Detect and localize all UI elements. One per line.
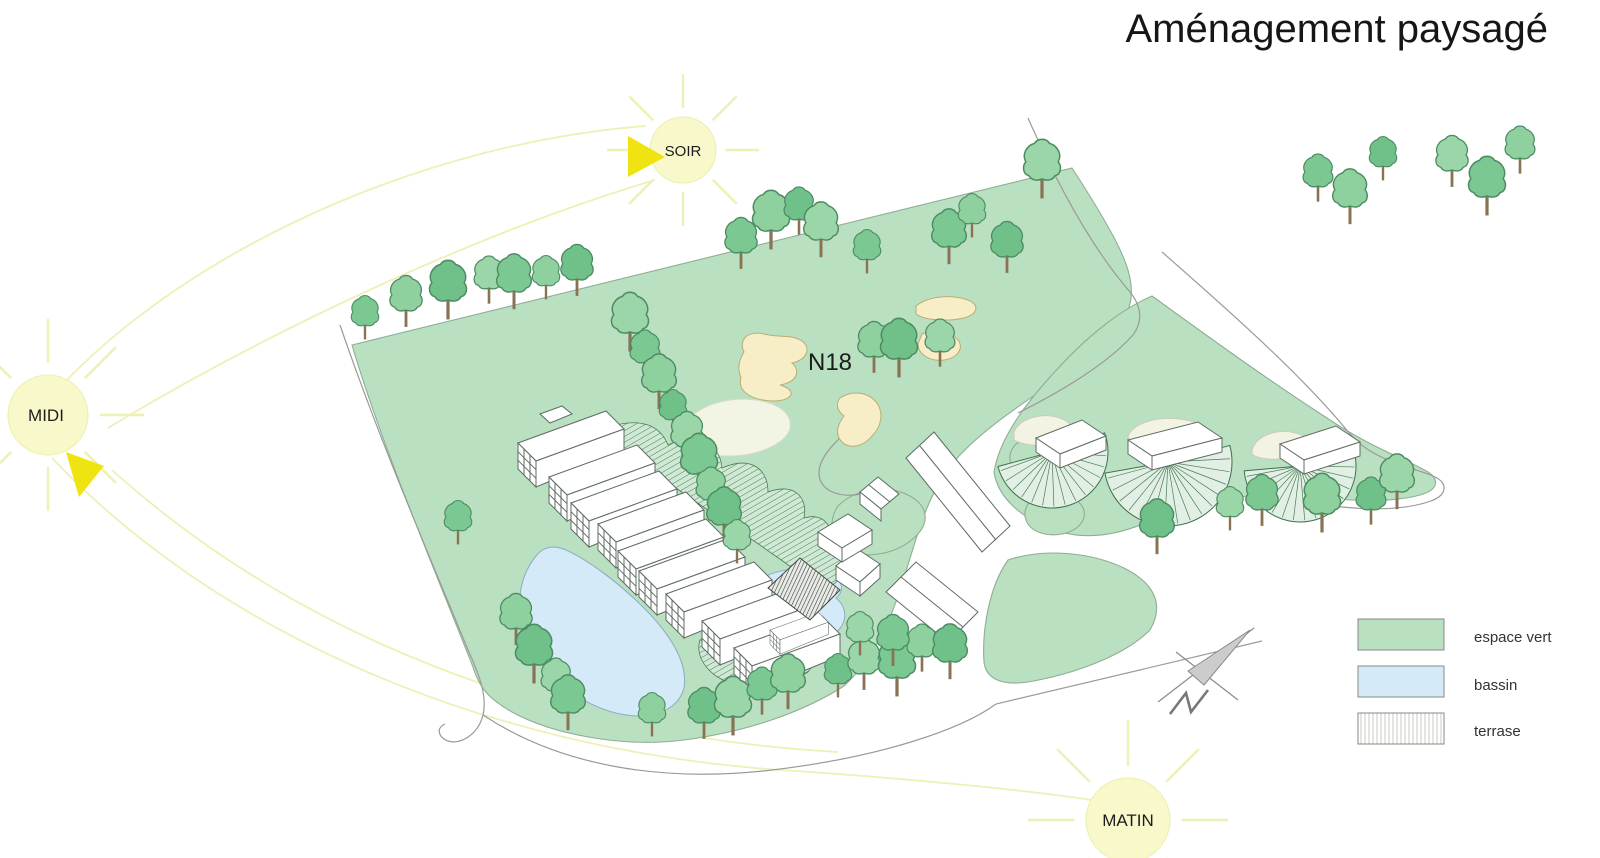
page-title: Aménagement paysagé	[1126, 7, 1549, 51]
legend-label-espace-vert: espace vert	[1474, 629, 1552, 646]
legend-swatch-bassin	[1358, 666, 1444, 697]
sun-label-matin: MATIN	[1102, 811, 1154, 830]
north-arrow	[1158, 628, 1254, 714]
north-arrow-pointer	[1188, 630, 1250, 685]
sun-ray	[0, 452, 11, 483]
sun-ray	[85, 347, 116, 378]
tree-icon	[1369, 137, 1396, 181]
tree-icon	[1469, 156, 1506, 215]
tree-icon	[848, 638, 880, 689]
legend: espace vert bassin terrase	[1358, 619, 1552, 744]
site-plan-canvas: SOIR MIDI MATIN N18 Aménagement paysagé …	[0, 0, 1600, 858]
tree-icon	[1216, 487, 1243, 531]
legend-label-terrase: terrase	[1474, 723, 1521, 740]
landscape-plan-page: SOIR MIDI MATIN N18 Aménagement paysagé …	[0, 0, 1600, 858]
sun-ray	[1166, 749, 1199, 782]
tree-icon	[390, 275, 422, 326]
green-island	[984, 553, 1157, 683]
tree-icon	[1333, 169, 1368, 224]
legend-item-terrase: terrase	[1358, 713, 1521, 744]
legend-swatch-terrase	[1358, 713, 1444, 744]
legend-item-bassin: bassin	[1358, 666, 1517, 697]
sun-label-midi: MIDI	[28, 406, 64, 425]
tree-icon	[1304, 473, 1341, 532]
tree-icon	[1505, 126, 1535, 174]
area-label-n18: N18	[808, 349, 852, 376]
tree-icon	[1303, 154, 1333, 202]
tree-icon	[351, 296, 378, 340]
tree-icon	[532, 256, 559, 300]
legend-swatch-espace-vert	[1358, 619, 1444, 650]
tree-icon	[430, 260, 467, 319]
north-letter-sketch	[1170, 690, 1208, 714]
sun-ray	[629, 96, 653, 120]
legend-item-espace-vert: espace vert	[1358, 619, 1552, 650]
tree-icon	[1436, 135, 1468, 186]
tree-icon	[1246, 474, 1278, 525]
tree-icon	[1140, 499, 1175, 554]
tree-icon	[497, 254, 532, 309]
tree-icon	[933, 624, 968, 679]
sun-label-soir: SOIR	[665, 143, 702, 160]
sun-ray	[713, 180, 737, 204]
sun-ray	[0, 347, 11, 378]
legend-label-bassin: bassin	[1474, 677, 1517, 694]
sun-ray	[713, 96, 737, 120]
sun-ray	[1057, 749, 1090, 782]
